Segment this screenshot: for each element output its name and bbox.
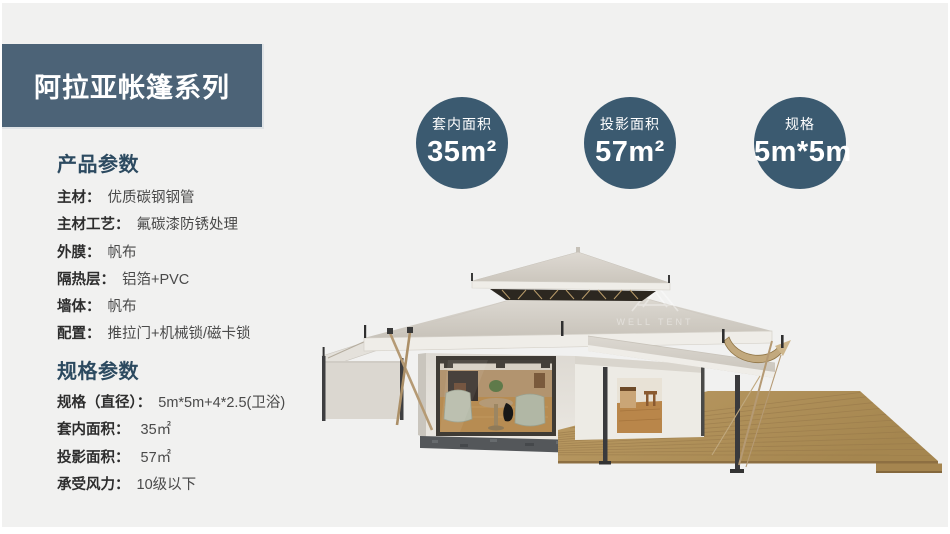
param-label: 套内面积： — [57, 418, 130, 439]
param-label: 规格（直径）： — [57, 391, 151, 412]
badge-label: 规格 — [754, 114, 846, 134]
param-label: 主材： — [57, 186, 101, 207]
svg-text:WELL TENT: WELL TENT — [616, 317, 693, 327]
param-label: 隔热层： — [57, 268, 115, 289]
infographic-page: 阿拉亚帐篷系列 产品参数 主材： 优质碳钢钢管 主材工艺： 氟碳漆防锈处理 外膜… — [0, 0, 950, 534]
param-row: 主材： 优质碳钢钢管 — [57, 186, 387, 213]
param-label: 外膜： — [57, 241, 101, 262]
series-title-banner: 阿拉亚帐篷系列 — [2, 44, 264, 129]
param-value: 10级以下 — [137, 473, 197, 494]
page-frame-bottom — [0, 527, 950, 534]
badge-size: 规格 5m*5m — [754, 97, 846, 189]
badge-interior-area: 套内面积 35m² — [416, 97, 508, 189]
param-label: 投影面积： — [57, 446, 130, 467]
param-value: 35㎡ — [137, 418, 172, 439]
param-value: 帆布 — [108, 295, 137, 316]
param-value: 5m*5m+4*2.5(卫浴) — [158, 391, 285, 412]
badge-value: 5m*5m — [754, 136, 846, 169]
page-frame-left — [0, 0, 2, 534]
porch-doorway — [617, 378, 662, 433]
badge-label: 套内面积 — [416, 114, 508, 134]
living-room-window — [436, 356, 556, 436]
param-label: 墙体： — [57, 295, 101, 316]
param-value: 优质碳钢钢管 — [108, 186, 195, 207]
badge-projection-area: 投影面积 57m² — [584, 97, 676, 189]
badge-value: 35m² — [416, 136, 508, 169]
param-value: 57㎡ — [137, 446, 172, 467]
param-value: 铝箔+PVC — [122, 268, 189, 289]
param-value: 帆布 — [108, 241, 137, 262]
param-label: 承受风力： — [57, 473, 130, 494]
tent-render: WELL TENT — [320, 225, 950, 534]
cap-roof — [471, 247, 670, 301]
series-title: 阿拉亚帐篷系列 — [34, 66, 230, 105]
truss-band — [490, 289, 656, 301]
param-value: 氟碳漆防锈处理 — [137, 213, 239, 234]
param-label: 配置： — [57, 322, 101, 343]
param-value: 推拉门+机械锁/磁卡锁 — [108, 322, 251, 343]
product-params-heading: 产品参数 — [57, 155, 387, 176]
badge-value: 57m² — [584, 136, 676, 169]
param-label: 主材工艺： — [57, 213, 130, 234]
badge-label: 投影面积 — [584, 114, 676, 134]
page-frame-top — [0, 0, 950, 3]
